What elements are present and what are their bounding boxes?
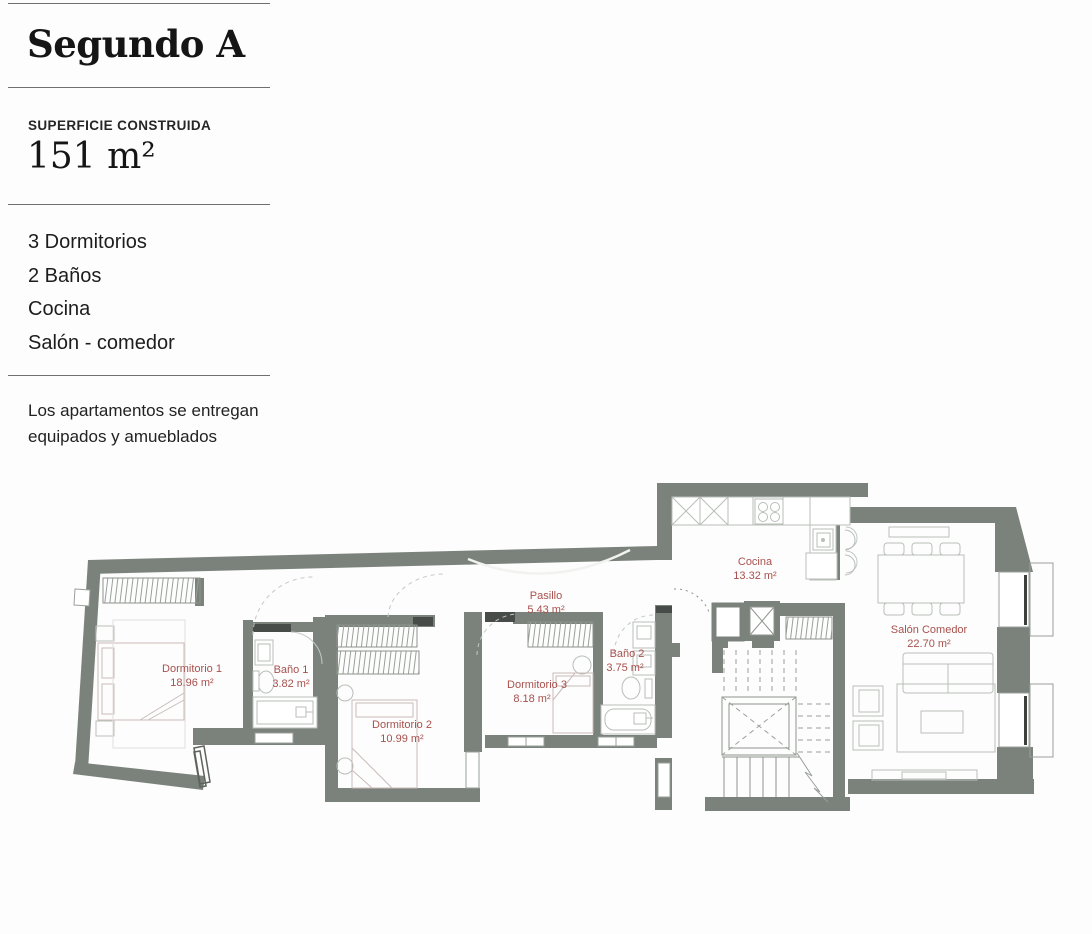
svg-text:13.32 m²: 13.32 m² [733,570,777,582]
salon-furniture [845,527,995,780]
svg-text:Salón Comedor: Salón Comedor [891,624,968,636]
room-label-cocina: Cocina 13.32 m² [733,556,777,582]
svg-text:3.75 m²: 3.75 m² [606,662,644,674]
svg-text:Cocina: Cocina [738,556,773,568]
room-label-salon-comedor: Salón Comedor 22.70 m² [891,624,968,650]
svg-text:Dormitorio 2: Dormitorio 2 [372,719,432,731]
floor-plan: Dormitorio 1 18.96 m² Baño 1 3.82 m² Dor… [0,0,1092,934]
room-label-dormitorio-2: Dormitorio 2 10.99 m² [372,719,432,745]
room-label-bano-1: Baño 1 3.82 m² [272,664,310,690]
svg-text:18.96 m²: 18.96 m² [170,677,214,689]
svg-text:Dormitorio 1: Dormitorio 1 [162,663,222,675]
svg-text:8.18 m²: 8.18 m² [513,693,551,705]
svg-text:Pasillo: Pasillo [530,590,562,602]
svg-text:Baño 2: Baño 2 [610,648,645,660]
svg-text:Dormitorio 3: Dormitorio 3 [507,679,567,691]
svg-text:3.82 m²: 3.82 m² [272,678,310,690]
svg-text:Baño 1: Baño 1 [274,664,309,676]
room-label-dormitorio-3: Dormitorio 3 8.18 m² [507,679,567,705]
svg-text:10.99 m²: 10.99 m² [380,733,424,745]
room-label-pasillo: Pasillo 5.43 m² [527,590,565,616]
room-label-dormitorio-1: Dormitorio 1 18.96 m² [162,663,222,689]
svg-text:22.70 m²: 22.70 m² [907,638,951,650]
svg-text:5.43 m²: 5.43 m² [527,604,565,616]
